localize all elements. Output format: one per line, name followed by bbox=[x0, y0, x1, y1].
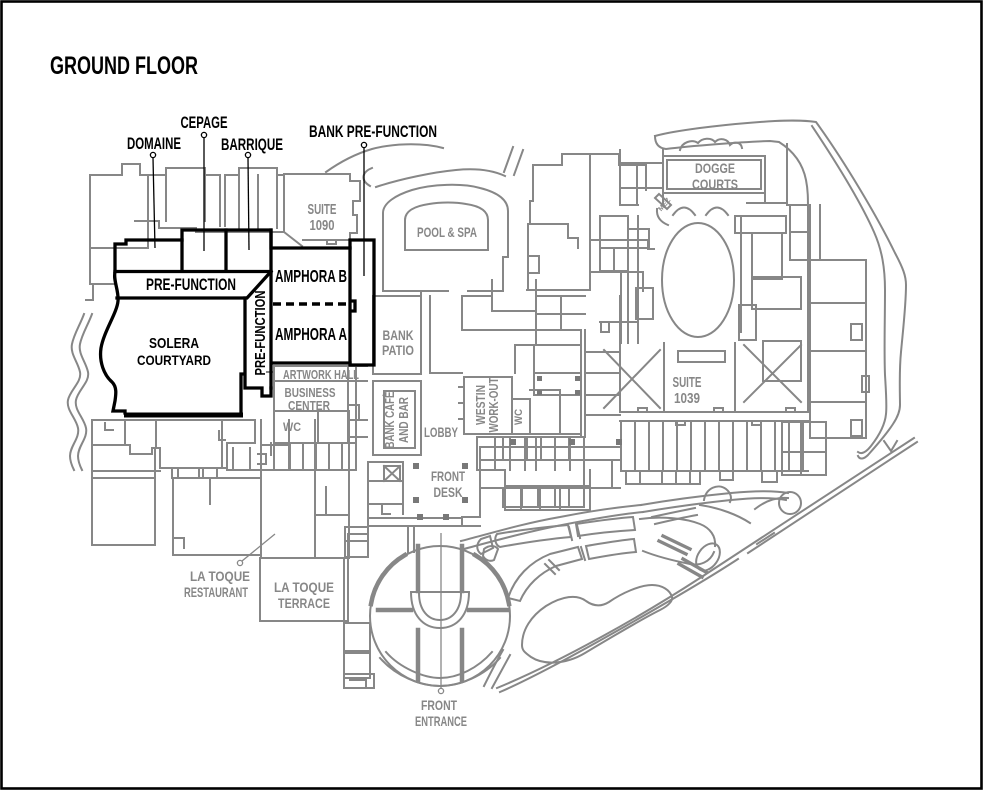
svg-text:COURTS: COURTS bbox=[692, 176, 738, 192]
svg-text:AMPHORA A: AMPHORA A bbox=[275, 324, 347, 344]
svg-text:DESK: DESK bbox=[434, 484, 463, 500]
svg-text:BUSINESS: BUSINESS bbox=[285, 386, 336, 400]
svg-text:COURTYARD: COURTYARD bbox=[137, 353, 211, 368]
svg-text:RESTAURANT: RESTAURANT bbox=[184, 584, 248, 600]
svg-text:WORK-OUT: WORK-OUT bbox=[487, 377, 501, 432]
svg-text:DOGGE: DOGGE bbox=[695, 160, 735, 176]
svg-text:PATIO: PATIO bbox=[382, 343, 414, 358]
svg-text:ENTRANCE: ENTRANCE bbox=[415, 713, 467, 729]
svg-text:CEPAGE: CEPAGE bbox=[181, 114, 228, 132]
svg-text:PRE-FUNCTION: PRE-FUNCTION bbox=[253, 291, 269, 376]
svg-text:1039: 1039 bbox=[674, 391, 700, 407]
svg-text:BARRIQUE: BARRIQUE bbox=[221, 136, 283, 154]
svg-text:BANK CAFÈ: BANK CAFÈ bbox=[382, 392, 397, 449]
svg-text:SOLERA: SOLERA bbox=[149, 336, 199, 352]
svg-text:CENTER: CENTER bbox=[288, 399, 330, 413]
svg-text:FRONT: FRONT bbox=[431, 468, 465, 484]
svg-text:1090: 1090 bbox=[310, 218, 335, 234]
svg-text:PRE-FUNCTION: PRE-FUNCTION bbox=[146, 275, 236, 294]
svg-text:DOMAINE: DOMAINE bbox=[127, 135, 181, 153]
svg-text:WESTIN: WESTIN bbox=[474, 385, 488, 425]
svg-text:GROUND FLOOR: GROUND FLOOR bbox=[50, 52, 198, 80]
svg-text:WC: WC bbox=[283, 420, 301, 434]
svg-text:TERRACE: TERRACE bbox=[278, 595, 330, 611]
svg-text:BANK: BANK bbox=[383, 328, 414, 343]
svg-text:POOL & SPA: POOL & SPA bbox=[417, 224, 477, 240]
svg-text:BANK PRE-FUNCTION: BANK PRE-FUNCTION bbox=[309, 123, 437, 141]
svg-text:ARTWORK HALL: ARTWORK HALL bbox=[283, 368, 359, 382]
svg-text:FRONT: FRONT bbox=[421, 697, 457, 713]
svg-text:SUITE: SUITE bbox=[673, 375, 702, 391]
svg-text:LOBBY: LOBBY bbox=[424, 424, 458, 440]
svg-text:WC: WC bbox=[513, 409, 525, 425]
svg-text:LA TOQUE: LA TOQUE bbox=[190, 568, 250, 584]
svg-text:LA TOQUE: LA TOQUE bbox=[274, 579, 334, 595]
svg-text:SUITE: SUITE bbox=[308, 202, 337, 218]
svg-text:AMPHORA B: AMPHORA B bbox=[275, 266, 347, 286]
svg-text:AND BAR: AND BAR bbox=[397, 397, 411, 443]
